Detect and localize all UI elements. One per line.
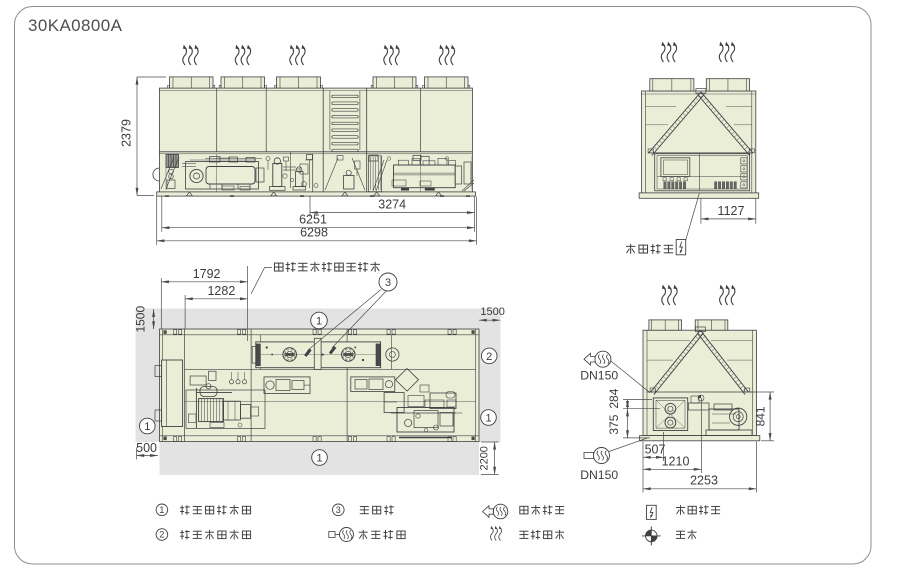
svg-text:3274: 3274	[378, 198, 406, 212]
svg-text:1: 1	[144, 421, 150, 433]
svg-text:2379: 2379	[120, 119, 134, 147]
svg-text:1500: 1500	[480, 306, 504, 318]
svg-text:841: 841	[753, 406, 767, 426]
svg-text:2: 2	[486, 351, 492, 363]
svg-text:500: 500	[136, 441, 157, 455]
svg-text:1: 1	[316, 452, 322, 464]
svg-text:1: 1	[485, 412, 491, 424]
svg-text:1: 1	[316, 315, 322, 327]
svg-text:1: 1	[159, 505, 164, 515]
svg-text:1282: 1282	[207, 284, 235, 298]
svg-text:DN150: DN150	[580, 468, 618, 482]
svg-text:DN150: DN150	[580, 369, 618, 383]
svg-text:375: 375	[607, 414, 621, 434]
svg-text:2: 2	[159, 530, 164, 540]
svg-text:3: 3	[385, 277, 391, 289]
svg-text:2253: 2253	[690, 474, 718, 488]
svg-text:6251: 6251	[299, 213, 327, 227]
svg-text:6298: 6298	[300, 226, 328, 240]
svg-text:1792: 1792	[193, 267, 221, 281]
svg-text:30KA0800A: 30KA0800A	[28, 16, 123, 35]
svg-text:1500: 1500	[134, 306, 148, 333]
svg-text:1210: 1210	[662, 454, 690, 468]
svg-text:1127: 1127	[718, 204, 745, 218]
svg-text:3: 3	[336, 505, 341, 515]
svg-text:2200: 2200	[479, 446, 491, 470]
svg-text:284: 284	[607, 388, 621, 408]
